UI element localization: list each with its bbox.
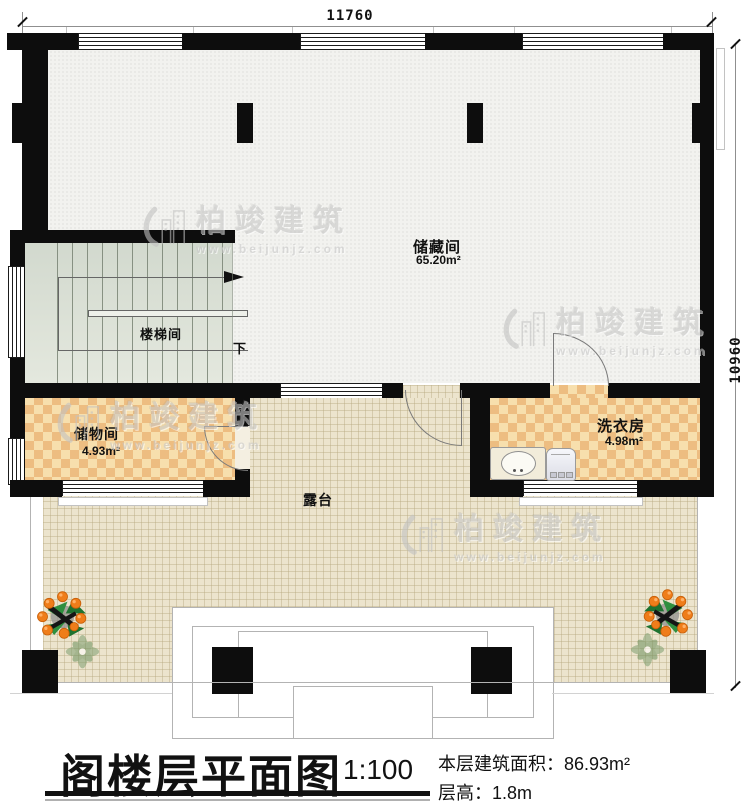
window-mid [280, 383, 384, 398]
terrace-edge-line [30, 682, 698, 683]
wall-stairwell-top [10, 230, 235, 243]
title-underline-thin [45, 799, 430, 801]
dim-line-top [22, 26, 713, 27]
washing-machine [546, 448, 576, 481]
window-laundry [523, 480, 639, 496]
laundry-label: 洗衣房 [597, 415, 645, 436]
terrace-outer-line-left [10, 693, 172, 694]
door-gap-laundry [550, 385, 608, 398]
wall-top-3 [425, 33, 522, 50]
washer-control-3 [566, 472, 573, 478]
stair-flight-line-top [58, 277, 226, 278]
window-top-2 [300, 33, 427, 50]
window-top-1 [78, 33, 184, 50]
wall-right-pillar [692, 103, 714, 143]
stairwell-label: 楼梯间 [140, 324, 182, 343]
wall-laundry-bottom-right [637, 480, 714, 497]
balcony-pillar-right [471, 647, 512, 694]
sink-drain [513, 469, 516, 472]
interior-column-1 [237, 103, 253, 143]
window-left-1 [8, 266, 24, 358]
wall-left-pillar [12, 103, 24, 143]
stair-flight-line-left [58, 277, 59, 351]
dim-height-label: 10960 [728, 330, 744, 390]
window-sill-right [716, 48, 725, 150]
window-closet [62, 480, 205, 496]
balcony-pillar-left [212, 647, 253, 694]
laundry-area: 4.98m² [605, 434, 643, 448]
wall-closet-right-upper [235, 396, 250, 426]
closet-label: 储物间 [74, 424, 119, 444]
washer-control-1 [550, 472, 557, 478]
balcony-step-inner [293, 686, 433, 739]
window-sill-laundry [519, 497, 643, 506]
washer-control-2 [558, 472, 565, 478]
potted-plant-left [30, 585, 115, 685]
wall-closet-bottom-left [10, 480, 62, 497]
window-top-3 [522, 33, 665, 50]
floor-height-value: 1.8m [492, 783, 532, 803]
window-sill-closet [58, 497, 208, 506]
interior-column-2 [467, 103, 483, 143]
floor-area-label: 本层建筑面积： [438, 754, 564, 774]
wall-top-2 [182, 33, 300, 50]
potted-plant-right [615, 583, 700, 683]
stair-handrail [88, 310, 248, 317]
wall-mid-4 [608, 383, 714, 398]
window-left-2 [8, 438, 24, 485]
washer-lid-line [551, 451, 570, 455]
sink-basin [501, 451, 536, 476]
closet-area: 4.93m² [82, 444, 120, 458]
stair-down-label: 下 [233, 338, 247, 357]
stairwell-edge [232, 243, 233, 383]
terrace-outer-line-right [552, 693, 714, 694]
floor-plan: 储藏间 65.20m² 楼梯间 下 储物间 4.93m² 洗衣房 4.98m² … [0, 0, 750, 811]
floor-height-line: 层高：1.8m [438, 779, 532, 805]
dim-width-label: 11760 [320, 8, 380, 24]
closet-floor [25, 396, 235, 480]
title-underline-thick [45, 791, 430, 796]
floor-area-value: 86.93m² [564, 754, 630, 774]
terrace-label: 露台 [303, 490, 333, 510]
wall-left-upper [22, 33, 48, 243]
wall-laundry-bottom-left [470, 480, 523, 497]
sink-faucet [520, 469, 523, 472]
floor-area-line: 本层建筑面积：86.93m² [438, 750, 630, 776]
floor-height-label: 层高： [438, 783, 492, 803]
stair-direction-arrow-icon [224, 271, 244, 283]
plan-scale: 1:100 [343, 754, 413, 786]
sink-counter [490, 447, 546, 480]
stair-flight-line-bottom [58, 350, 248, 351]
wall-mid-2 [382, 383, 403, 398]
storage-room-area: 65.20m² [416, 253, 461, 267]
wall-closet-bottom-right [203, 480, 250, 497]
